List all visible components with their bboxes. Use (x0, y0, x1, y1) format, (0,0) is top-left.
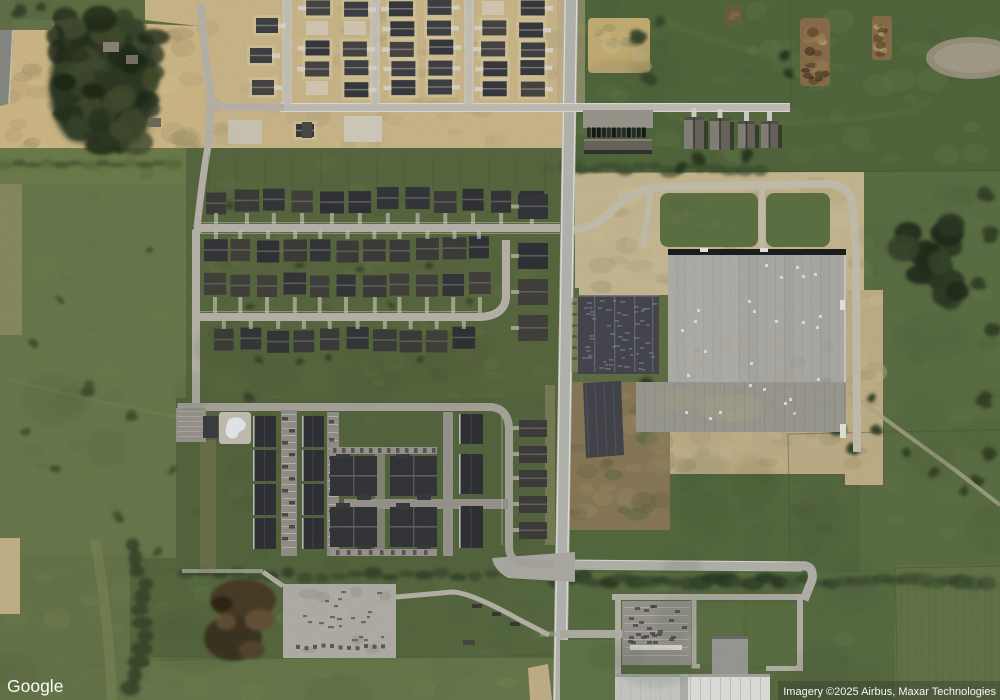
svg-text:Imagery ©2025 Airbus, Maxar Te: Imagery ©2025 Airbus, Maxar Technologies (783, 686, 996, 698)
svg-text:Google: Google (7, 676, 63, 696)
